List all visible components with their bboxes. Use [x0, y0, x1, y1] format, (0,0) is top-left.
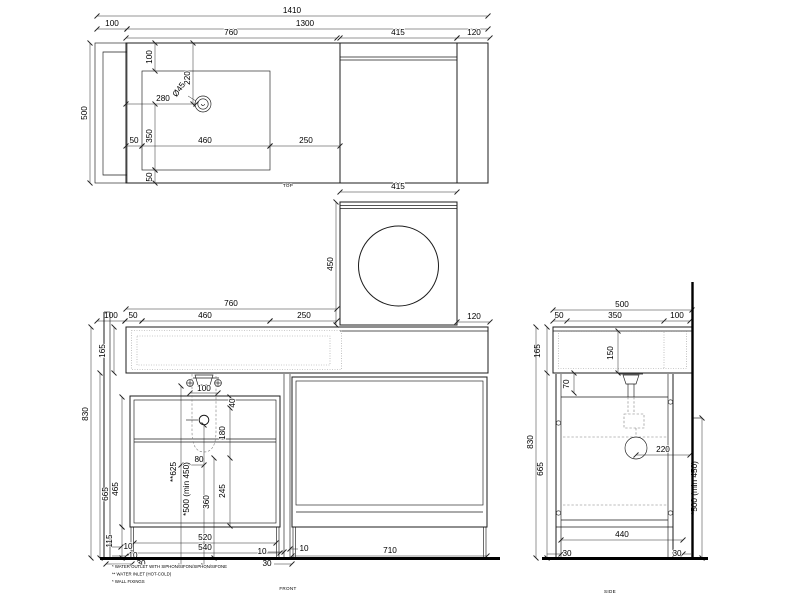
dim-side-worktop-height: 165 — [533, 344, 542, 358]
washer-door — [359, 226, 439, 306]
dim-front-offset: 50 — [554, 311, 564, 320]
dim-front-leg: 30 — [562, 549, 572, 558]
dim-right-door-width: 710 — [383, 546, 397, 555]
dim-cabinet-width: 540 — [198, 543, 212, 552]
dim-bracket-depth: 100 — [105, 19, 119, 28]
dim-sink-left-inset: 50 — [129, 136, 139, 145]
dim-outlet-height: *500 (min 450) — [182, 462, 191, 516]
washer-body — [340, 202, 457, 325]
dim-depth: 500 — [615, 300, 629, 309]
water-outlet — [199, 415, 209, 425]
dim-front-sink-width: 460 — [198, 311, 212, 320]
dim-back-leg: 30 — [672, 549, 682, 558]
dim-back-gap: 100 — [670, 311, 684, 320]
faucet-hole-outer — [195, 96, 211, 112]
wall-fixing-screw — [556, 511, 560, 515]
wall-fixing-screw — [556, 421, 560, 425]
dim-inlet-outlet-gap: 80 — [194, 455, 204, 464]
dim-front-sink-to-washer: 250 — [297, 311, 311, 320]
dim-sink-bottom-inset: 50 — [145, 172, 154, 182]
washer-elevation: 450 120 — [326, 202, 490, 325]
dim-hole-from-left: 280 — [156, 94, 170, 103]
front-view: 760 100 50 460 250 165 830 665 465 115 — [81, 299, 500, 591]
dim-side-total-height: 830 — [526, 435, 535, 449]
dim-apron-height: 70 — [562, 379, 571, 389]
note-wall-fixings: * WALL FIXINGS — [112, 579, 145, 584]
basin-hidden-outline-side — [559, 332, 687, 369]
dim-washer-width: 415 — [391, 28, 405, 37]
drain-fitting-side — [623, 375, 639, 384]
dim-drain-offset: 350 — [608, 311, 622, 320]
dim-inlet-height: **625 — [169, 462, 178, 482]
dim-base-width: 440 — [615, 530, 629, 539]
dim-trap-height: 360 — [202, 495, 211, 509]
dim-total-height: 830 — [81, 407, 90, 421]
basin-hidden-outline — [132, 331, 342, 370]
faucet-hole-mark — [202, 104, 205, 106]
dim-front-sink-left-inset: 50 — [128, 311, 138, 320]
dim-washer-height: 450 — [326, 257, 335, 271]
dim-sink-to-washer: 250 — [299, 136, 313, 145]
worktop-front — [126, 327, 488, 373]
dim-worktop-height: 165 — [98, 344, 107, 358]
wall-bracket-inner — [103, 52, 127, 175]
technical-drawing-page: 1410 100 1300 760 415 120 500 100 220 Ø4… — [0, 0, 800, 600]
dim-lower-zone: 245 — [218, 484, 227, 498]
siphon-body — [624, 414, 644, 428]
dim-sink-depth: 350 — [145, 129, 154, 143]
dim-overall-width: 1410 — [283, 6, 302, 15]
dim-top-inset: 40 — [228, 398, 237, 408]
faucet-hole-inner — [198, 99, 208, 109]
sink-cutout — [142, 71, 270, 170]
dim-hole-from-back: 220 — [183, 71, 192, 85]
dim-gap-a: 10 — [123, 542, 133, 551]
dim-divider-width: 30 — [262, 559, 272, 568]
dim-cabinet-height: 465 — [111, 482, 120, 496]
dim-side-under-worktop: 665 — [536, 462, 545, 476]
side-view: 500 50 350 100 165 665 830 150 70 — [526, 282, 708, 594]
siphon-trap — [625, 437, 647, 459]
dim-side-panel: 120 — [467, 28, 481, 37]
dim-washer-side-panel: 120 — [467, 312, 481, 321]
right-cabinet — [292, 377, 487, 527]
dim-body-width: 1300 — [296, 19, 315, 28]
dim-front-left-section: 760 — [224, 299, 238, 308]
wall-bracket-plan — [95, 43, 127, 183]
dim-front-wall-offset: 100 — [104, 311, 118, 320]
note-water-outlet: * WATER OUTLET WITH SIPHON/SIFON/SIPHON/… — [112, 564, 227, 569]
top-view-label: TOP — [283, 183, 293, 188]
side-view-label: SIDE — [604, 589, 616, 594]
front-view-label: FRONT — [279, 586, 296, 591]
dim-washer-width-lower: 415 — [391, 182, 405, 191]
dim-upper-zone: 180 — [218, 426, 227, 440]
dim-left-section: 760 — [224, 28, 238, 37]
wall-fixing-screw — [668, 511, 672, 515]
dim-sink-width: 460 — [198, 136, 212, 145]
dim-divider-gap-left: 10 — [257, 547, 267, 556]
countertop-plan — [126, 43, 488, 183]
worktop-side — [553, 327, 692, 373]
note-water-inlet: ** WATER INLET (HOT-COLD) — [112, 572, 172, 577]
dim-under-worktop: 665 — [101, 487, 110, 501]
dim-door-width: 520 — [198, 533, 212, 542]
dim-siphon-offset: 220 — [656, 445, 670, 454]
top-view: 1410 100 1300 760 415 120 500 100 220 Ø4… — [80, 6, 490, 192]
right-cabinet-door — [296, 381, 483, 505]
dim-divider-gap-right: 10 — [299, 544, 309, 553]
dim-inlet-spacing: 100 — [197, 384, 211, 393]
wall-fixing-screw — [668, 400, 672, 404]
dim-basin-depth: 150 — [606, 346, 615, 360]
dim-counter-depth: 500 — [80, 106, 89, 120]
dim-sink-top-inset: 100 — [145, 50, 154, 64]
dim-leg-height: 115 — [105, 534, 114, 547]
drawing-canvas: 1410 100 1300 760 415 120 500 100 220 Ø4… — [0, 0, 800, 600]
